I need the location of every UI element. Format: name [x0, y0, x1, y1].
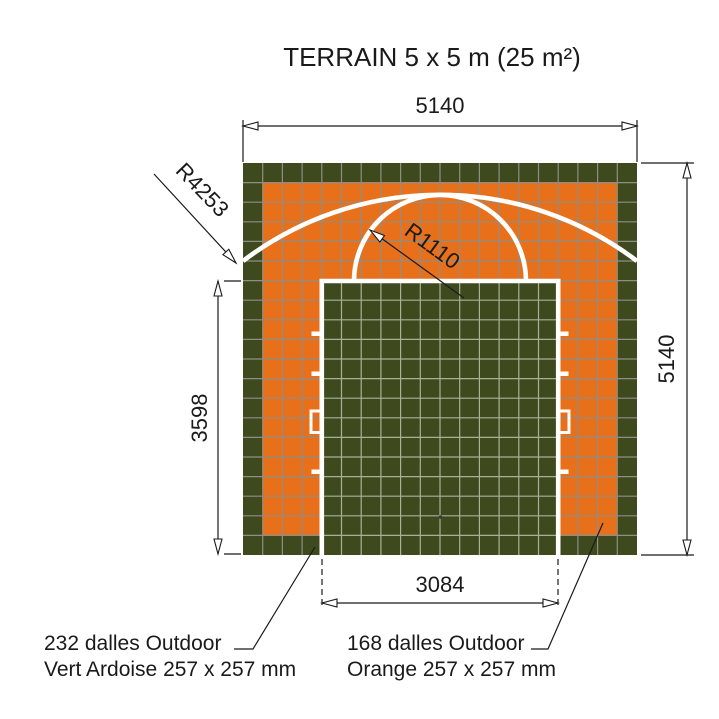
lane-tick [561, 332, 569, 337]
callout-green-tiles: 232 dalles Outdoor Vert Ardoise 257 x 25… [44, 547, 315, 681]
dimension-value: 5140 [654, 335, 679, 384]
callout-leader-line [234, 547, 315, 649]
callout-line1: 168 dalles Outdoor [347, 632, 524, 655]
drawing-title: TERRAIN 5 x 5 m (25 m²) [283, 42, 581, 72]
court-tiles [243, 163, 637, 555]
lane-tick [561, 470, 569, 475]
dimension-value: 3598 [187, 394, 212, 443]
lane-tick [561, 372, 569, 377]
dimension-key-height: 3598 [187, 281, 241, 554]
radius-value: R4253 [171, 158, 234, 222]
dimension-top-width: 5140 [243, 93, 637, 162]
dimension-key-width: 3084 [322, 559, 558, 608]
court-plan-drawing: TERRAIN 5 x 5 m (25 m²) 5140 [0, 0, 719, 719]
callout-line2: Orange 257 x 257 mm [347, 658, 556, 681]
lane-tick [312, 372, 320, 377]
dimension-right-height: 5140 [641, 163, 694, 555]
callout-line2: Vert Ardoise 257 x 257 mm [44, 658, 296, 681]
dimension-value: 3084 [416, 572, 465, 597]
plan-svg: TERRAIN 5 x 5 m (25 m²) 5140 [0, 0, 719, 719]
arc-center-mark [439, 515, 443, 519]
dimension-value: 5140 [416, 93, 465, 118]
lane-tick [312, 470, 320, 475]
callout-line1: 232 dalles Outdoor [44, 632, 221, 655]
radius-annotation-three-point: R4253 [154, 158, 236, 263]
lane-tick [312, 332, 320, 337]
